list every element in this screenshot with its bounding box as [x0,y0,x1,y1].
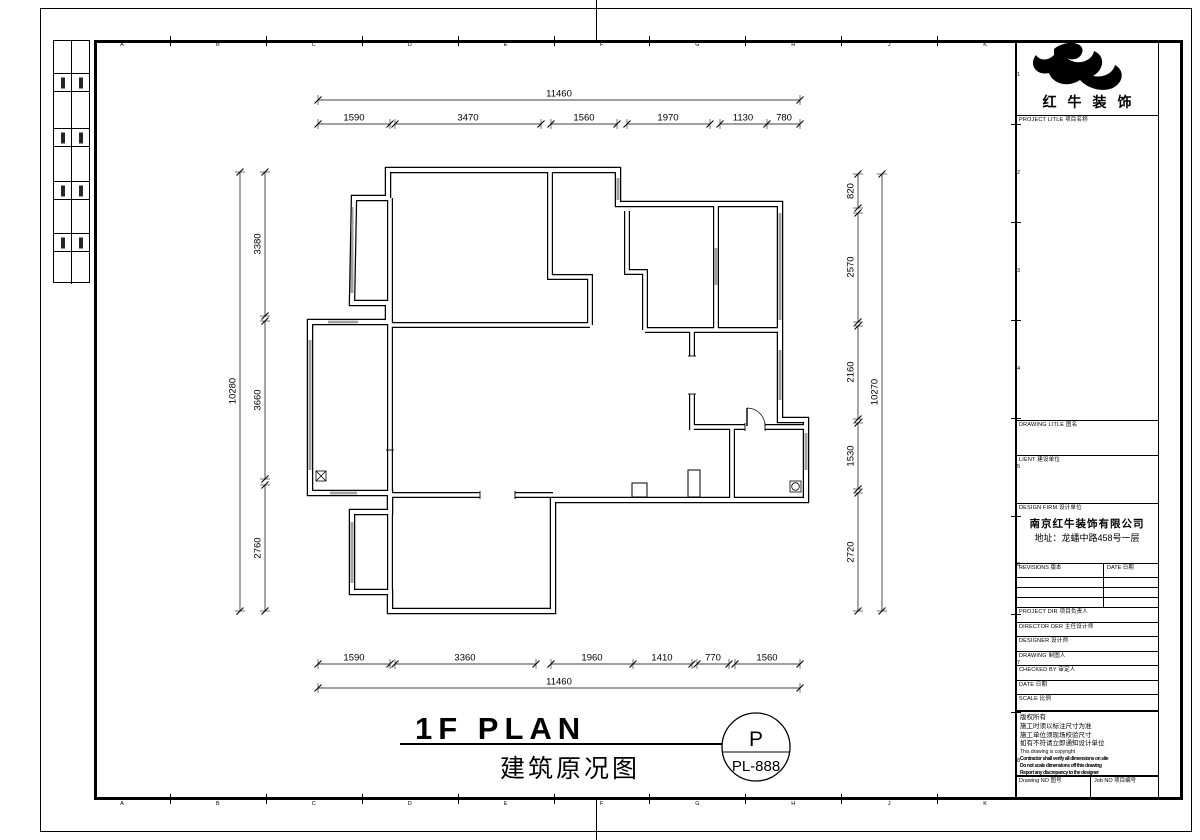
dim-label: 3660 [253,389,264,410]
drawing-title-en: 1F PLAN [415,711,586,746]
dim-label: 1590 [343,653,364,664]
dim-label: 2720 [846,541,857,562]
floor-plan-canvas: 1146015903470156019701130780159033601960… [0,0,1200,840]
dim-label: 2160 [846,361,857,382]
dim-label: 1560 [573,113,594,124]
exterior-walls-core [310,170,806,611]
stamp-letter: P [749,728,763,751]
dim-label: 1130 [733,113,753,124]
dim-label: 1590 [343,113,364,124]
interior-walls [390,170,806,592]
interior-walls-core [390,170,806,592]
dim-label: 3380 [253,233,264,254]
dim-label: 11460 [546,677,572,688]
floor-drain-icon [790,481,801,492]
dim-label: 1410 [651,653,672,664]
dim-label: 10280 [228,378,239,404]
wall-stub [688,470,700,497]
drawing-title-cn: 建筑原况图 [500,755,640,783]
dim-label: 1960 [581,653,602,664]
dim-label: 2570 [846,256,857,277]
dim-label: 11460 [546,89,572,100]
stamp-number: PL-888 [732,758,780,775]
sheet-number-stamp: P PL-888 [722,713,790,781]
dim-label: 2760 [253,537,264,558]
duct-symbol-icon [316,471,326,481]
dim-label: 1560 [756,653,777,664]
dimension-layer: 1146015903470156019701130780159033601960… [228,89,888,694]
door-swing-arc [747,408,765,426]
wall-stub [632,483,647,497]
dim-label: 1530 [846,445,857,466]
dim-label: 1970 [657,113,678,124]
plan-walls [310,170,806,611]
dim-label: 770 [705,653,721,664]
dim-label: 3360 [454,653,475,664]
footer-title-group: 1F PLAN 建筑原况图 [400,711,722,783]
exterior-walls [310,170,806,611]
window-symbols [309,178,807,583]
dim-label: 820 [846,183,857,199]
dim-label: 10270 [870,379,881,405]
dim-label: 3470 [457,113,478,124]
dim-label: 780 [776,113,792,124]
